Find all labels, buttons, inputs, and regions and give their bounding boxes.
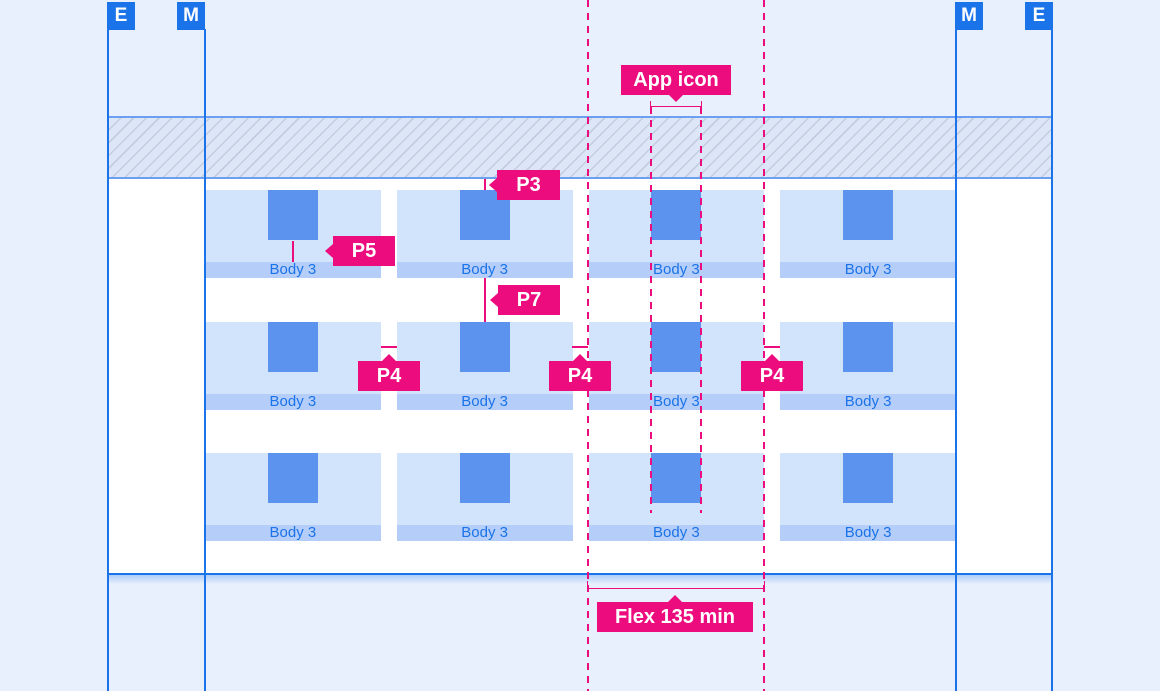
app-cell: Body 3 (589, 453, 765, 541)
app-icon-slot (589, 190, 765, 262)
cell-caption: Body 3 (653, 394, 700, 410)
app-cell: Body 3 (397, 322, 573, 410)
app-icon-slot (780, 190, 956, 262)
p4-measure-tick-3 (764, 346, 780, 348)
margin-guide-edge-right (1051, 29, 1053, 691)
cell-caption-bar: Body 3 (205, 394, 381, 410)
app-cell: Body 3 (397, 190, 573, 278)
app-icon (843, 453, 893, 503)
edge-marker-label: E (115, 5, 128, 27)
app-icon-badge: App icon (621, 65, 731, 95)
p3-measure-line (484, 179, 486, 190)
margin-guide-edge-left (107, 29, 109, 691)
cell-caption-bar: Body 3 (780, 525, 956, 541)
content-bottom-edge-glow (107, 575, 1053, 584)
app-icon-slot (780, 322, 956, 394)
edge-marker-m-left: M (177, 2, 205, 30)
flex-min-badge: Flex 135 min (597, 602, 753, 632)
app-icon-slot (589, 322, 765, 394)
cell-caption-bar: Body 3 (589, 525, 765, 541)
cell-caption: Body 3 (653, 262, 700, 278)
edge-marker-label: E (1033, 5, 1046, 27)
cell-caption: Body 3 (270, 525, 317, 541)
p3-badge-label: P3 (516, 174, 540, 197)
cell-caption: Body 3 (845, 394, 892, 410)
edge-marker-e-right: E (1025, 2, 1053, 30)
flex-min-badge-label: Flex 135 min (615, 606, 735, 629)
app-icon (268, 190, 318, 240)
cell-caption: Body 3 (845, 525, 892, 541)
spec-canvas: Body 3 Body 3 Body 3 Body 3 Body 3 Body … (0, 0, 1160, 691)
p4-badge-2: P4 (549, 361, 611, 391)
app-cell: Body 3 (780, 190, 956, 278)
app-icon-slot (589, 453, 765, 525)
app-icon (651, 190, 701, 240)
p4-badge-label: P4 (760, 365, 784, 388)
p7-measure-line (484, 278, 486, 322)
cell-caption-bar: Body 3 (397, 525, 573, 541)
p4-measure-tick-2 (572, 346, 588, 348)
cell-caption: Body 3 (653, 525, 700, 541)
app-cell: Body 3 (397, 453, 573, 541)
app-icon-badge-label: App icon (633, 69, 719, 92)
icon-grid-row: Body 3 Body 3 Body 3 Body 3 (205, 190, 956, 278)
p7-badge-label: P7 (517, 289, 541, 312)
cell-caption-bar: Body 3 (589, 262, 765, 278)
cell-caption-bar: Body 3 (589, 394, 765, 410)
app-cell: Body 3 (205, 453, 381, 541)
app-icon-guide-left-dashed (650, 107, 652, 513)
cell-caption: Body 3 (461, 394, 508, 410)
p4-badge-label: P4 (568, 365, 592, 388)
app-icon-slot (205, 453, 381, 525)
cell-caption-bar: Body 3 (397, 394, 573, 410)
app-icon (460, 322, 510, 372)
app-cell: Body 3 (589, 322, 765, 410)
app-icon-slot (397, 453, 573, 525)
cell-caption: Body 3 (270, 262, 317, 278)
cell-caption: Body 3 (845, 262, 892, 278)
p3-badge: P3 (497, 170, 560, 200)
cell-caption-bar: Body 3 (205, 525, 381, 541)
edge-marker-m-right: M (955, 2, 983, 30)
p4-badge-1: P4 (358, 361, 420, 391)
cell-caption: Body 3 (461, 525, 508, 541)
app-icon (843, 190, 893, 240)
p4-badge-label: P4 (377, 365, 401, 388)
app-icon (460, 453, 510, 503)
p4-badge-3: P4 (741, 361, 803, 391)
app-icon-slot (397, 190, 573, 262)
app-cell: Body 3 (205, 322, 381, 410)
p5-badge-label: P5 (352, 240, 376, 263)
app-icon (268, 453, 318, 503)
app-icon-slot (397, 322, 573, 394)
app-cell: Body 3 (780, 322, 956, 410)
app-cell: Body 3 (780, 453, 956, 541)
cell-caption: Body 3 (461, 262, 508, 278)
p7-badge: P7 (498, 285, 560, 315)
cell-caption-bar: Body 3 (780, 394, 956, 410)
margin-guide-main-left (204, 29, 206, 691)
cell-caption-bar: Body 3 (397, 262, 573, 278)
app-icon-slot (780, 453, 956, 525)
cell-caption: Body 3 (270, 394, 317, 410)
app-icon-slot (205, 322, 381, 394)
icon-grid-row: Body 3 Body 3 Body 3 Body 3 (205, 453, 956, 541)
p4-measure-tick-1 (381, 346, 397, 348)
p5-badge: P5 (333, 236, 395, 266)
edge-marker-label: M (183, 5, 199, 27)
app-icon (268, 322, 318, 372)
app-icon (651, 322, 701, 372)
cell-caption-bar: Body 3 (780, 262, 956, 278)
flex-width-bracket (587, 581, 765, 589)
app-icon (651, 453, 701, 503)
edge-marker-label: M (961, 5, 977, 27)
hatched-status-band (107, 116, 1053, 179)
p5-measure-line (292, 241, 294, 262)
edge-marker-e-left: E (107, 2, 135, 30)
app-cell: Body 3 (589, 190, 765, 278)
margin-guide-main-right (955, 29, 957, 691)
app-icon-guide-right-dashed (700, 107, 702, 513)
app-icon (843, 322, 893, 372)
